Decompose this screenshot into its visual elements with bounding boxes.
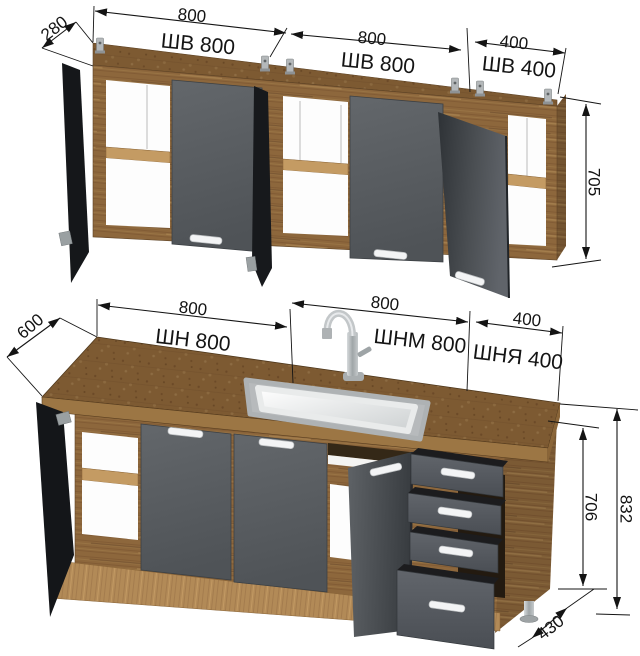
wall-cabinet-door-closed-1 — [172, 80, 262, 252]
extension-line — [93, 6, 94, 42]
faucet-lever — [357, 346, 372, 358]
extension-line — [552, 260, 601, 267]
extension-line — [7, 357, 42, 396]
cabinet-name-shv400: ШВ 400 — [481, 52, 557, 83]
extension-line — [60, 318, 97, 337]
extension-line — [560, 97, 601, 104]
base-cabinet-door-closed-1 — [141, 424, 231, 580]
wall-cabinet-door-open-right — [438, 112, 509, 298]
extension-line — [467, 311, 470, 391]
dim-label-height-706: 706 — [582, 493, 601, 521]
dim-label-width-3: 400 — [499, 32, 529, 54]
extension-line — [518, 638, 532, 647]
cabinet-name-shnm800: ШНМ 800 — [373, 325, 468, 358]
cabinet-interior-opening — [82, 480, 138, 540]
cabinet-interior-opening — [106, 80, 170, 152]
door-hinge — [59, 231, 72, 246]
door-hinge — [246, 256, 257, 271]
cabinet-interior-opening — [106, 158, 170, 228]
dim-label-depth-430: 430 — [534, 611, 568, 643]
base-cabinet-door-closed-2 — [234, 434, 327, 592]
kitchen-dimension-diagram: 280 800 ШВ 800 800 ШВ 800 400 ШВ 400 705 — [0, 0, 640, 656]
extension-line — [596, 614, 630, 615]
extension-line — [76, 22, 93, 43]
foot-base — [520, 616, 538, 623]
dim-label-height-832: 832 — [617, 495, 636, 523]
extension-line — [467, 28, 470, 92]
dim-label-width-1: 800 — [177, 5, 207, 27]
extension-line — [560, 404, 638, 410]
drawer-stack — [397, 448, 508, 649]
wall-cabinets-row — [59, 38, 566, 298]
wall-mount-bracket — [450, 78, 460, 94]
wall-cabinet-door-open-left — [62, 63, 89, 283]
dim-label-depth-600: 600 — [13, 310, 47, 343]
wall-mount-bracket — [260, 56, 270, 72]
cabinet-interior-opening — [508, 185, 546, 246]
wall-cabinet-door-closed-2 — [350, 96, 443, 262]
wall-cabinets-side-face-shade — [557, 94, 566, 260]
extension-line — [567, 589, 594, 608]
faucet-column — [347, 332, 358, 376]
wall-mount-bracket — [543, 89, 553, 105]
extension-line — [558, 48, 566, 94]
cabinet-interior-opening — [283, 96, 348, 164]
cabinet-interior-opening — [82, 432, 138, 474]
cabinet-interior-opening — [283, 170, 348, 236]
dim-label-width-2: 800 — [357, 28, 387, 50]
diagram-canvas: 280 800 ШВ 800 800 ШВ 800 400 ШВ 400 705 — [0, 0, 640, 656]
wall-mount-bracket — [475, 81, 485, 97]
dim-label-width-6: 400 — [512, 308, 542, 330]
cabinet-name-shnya400: ШНЯ 400 — [472, 341, 565, 375]
faucet-spout — [322, 328, 332, 339]
dim-label-width-4: 800 — [178, 297, 208, 319]
dim-label-height-705: 705 — [585, 168, 604, 196]
cabinet-name-shv800-2: ШВ 800 — [340, 48, 416, 78]
dim-label-depth-280: 280 — [37, 12, 71, 44]
wall-mount-bracket — [95, 38, 105, 54]
wall-mount-bracket — [285, 59, 295, 75]
extension-line — [42, 48, 93, 66]
dim-label-width-5: 800 — [370, 292, 400, 314]
